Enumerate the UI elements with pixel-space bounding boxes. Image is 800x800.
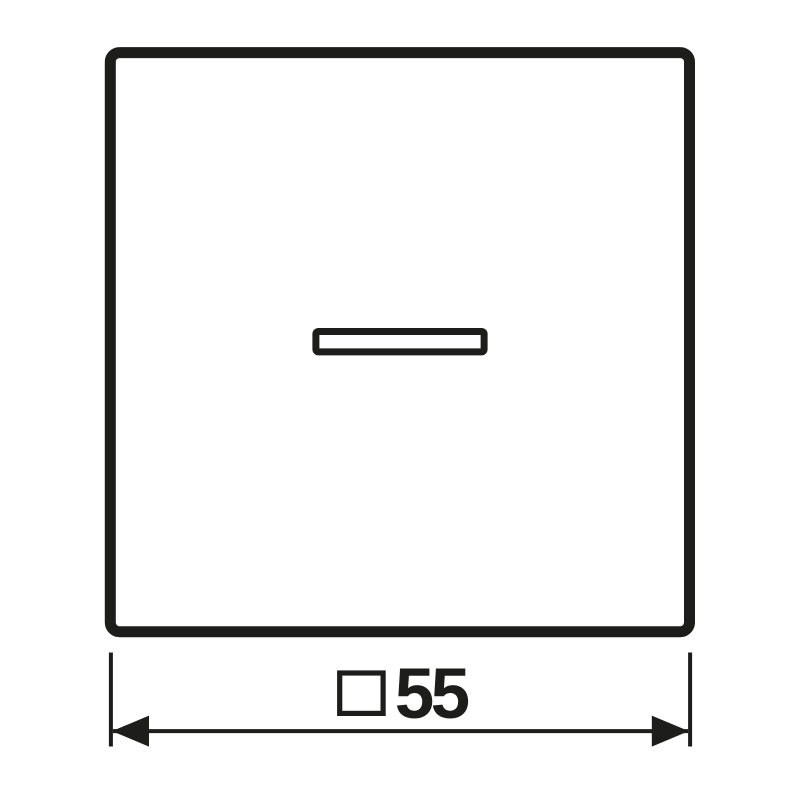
svg-text:55: 55 [395, 655, 469, 734]
